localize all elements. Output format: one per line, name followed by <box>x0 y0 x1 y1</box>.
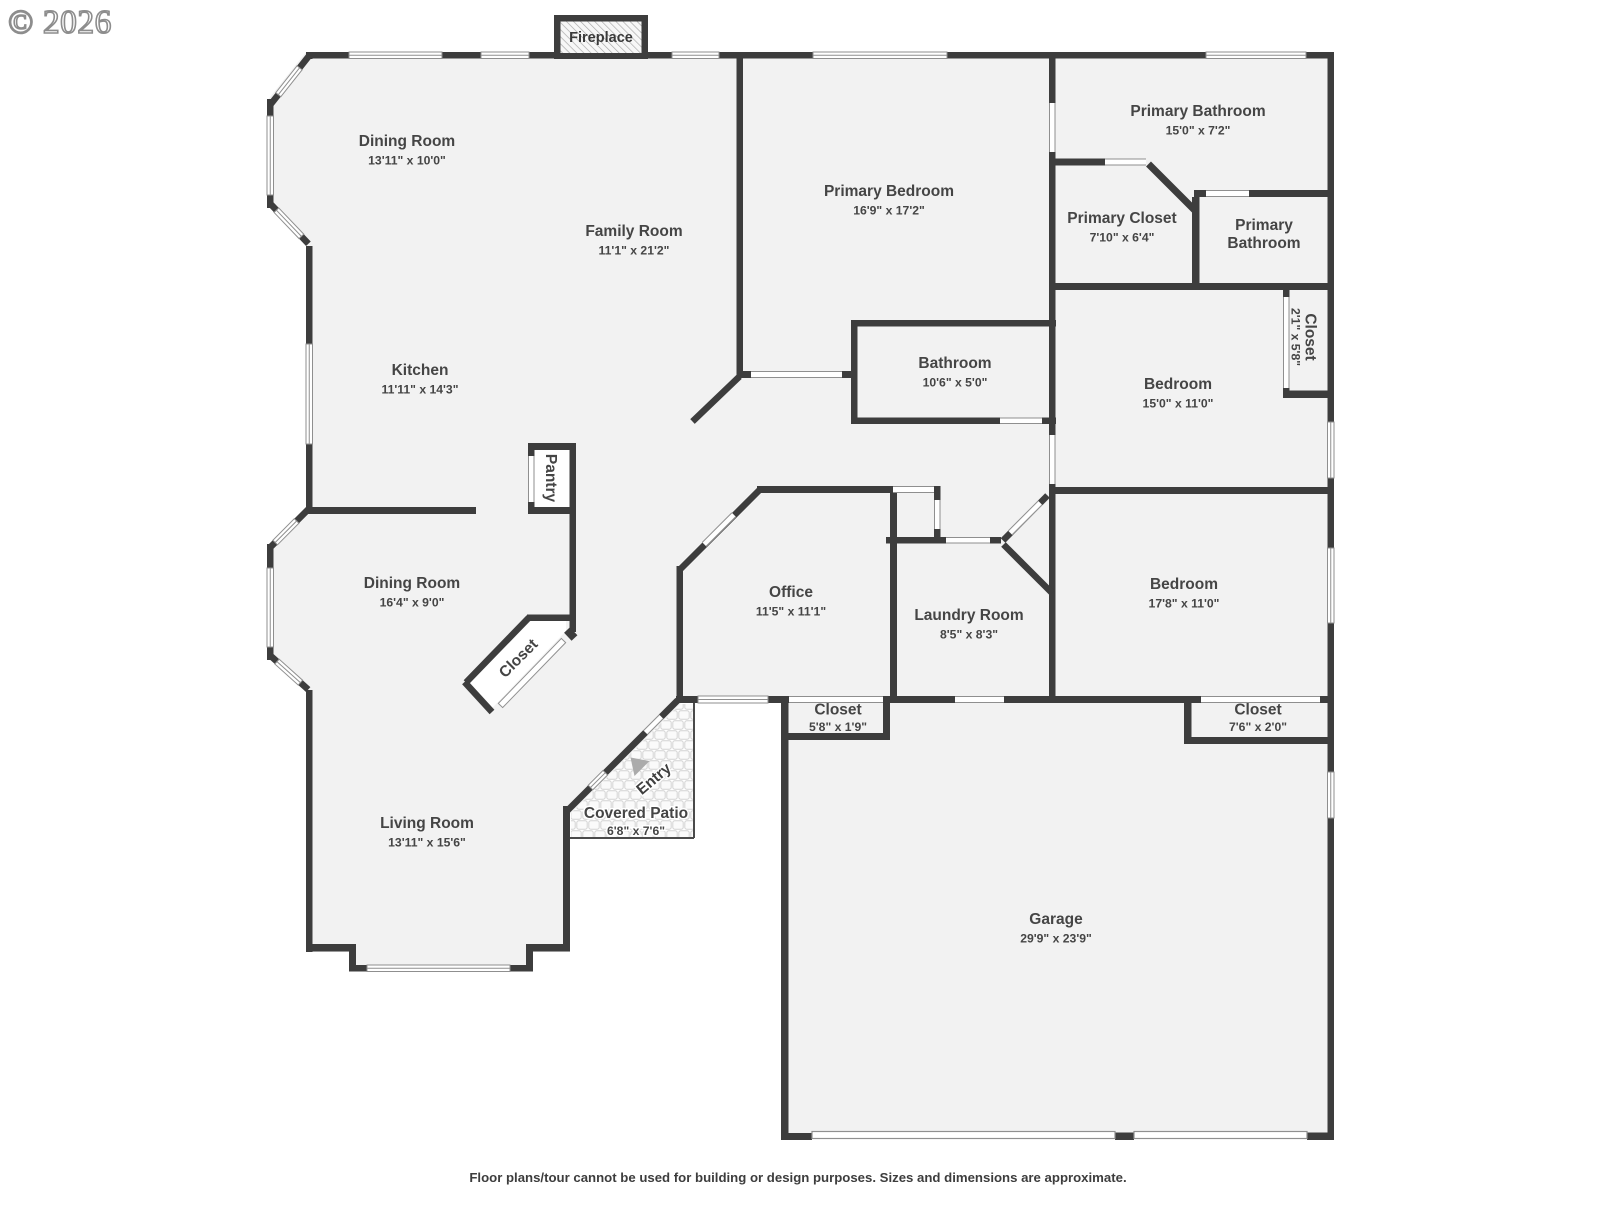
svg-text:Bathroom: Bathroom <box>918 355 991 372</box>
svg-text:Bedroom: Bedroom <box>1150 576 1218 593</box>
svg-text:5'8" x 1'9": 5'8" x 1'9" <box>809 720 867 734</box>
svg-text:Closet: Closet <box>814 702 861 719</box>
svg-text:13'11" x 15'6": 13'11" x 15'6" <box>388 836 466 850</box>
svg-text:Primary Closet: Primary Closet <box>1067 210 1176 227</box>
svg-text:16'4" x 9'0": 16'4" x 9'0" <box>380 596 445 610</box>
svg-text:29'9" x 23'9": 29'9" x 23'9" <box>1020 932 1092 946</box>
svg-text:Fireplace: Fireplace <box>569 30 633 46</box>
svg-text:Dining Room: Dining Room <box>359 133 455 150</box>
svg-text:13'11" x 10'0": 13'11" x 10'0" <box>368 154 446 168</box>
svg-text:11'11" x 14'3": 11'11" x 14'3" <box>381 383 458 397</box>
svg-text:Pantry: Pantry <box>542 454 559 503</box>
svg-text:10'6" x 5'0": 10'6" x 5'0" <box>923 376 988 390</box>
svg-text:11'1" x 21'2": 11'1" x 21'2" <box>599 244 670 258</box>
svg-text:6'8" x 7'6": 6'8" x 7'6" <box>607 824 665 838</box>
svg-text:15'0" x 7'2": 15'0" x 7'2" <box>1166 124 1231 138</box>
svg-text:Primary Bathroom: Primary Bathroom <box>1130 103 1265 120</box>
svg-text:Office: Office <box>769 584 813 601</box>
svg-text:2'1" x 5'8": 2'1" x 5'8" <box>1289 308 1303 366</box>
svg-text:15'0" x 11'0": 15'0" x 11'0" <box>1143 397 1214 411</box>
svg-text:8'5" x 8'3": 8'5" x 8'3" <box>940 628 998 642</box>
svg-text:Laundry Room: Laundry Room <box>914 607 1023 624</box>
svg-text:Dining Room: Dining Room <box>364 575 460 592</box>
svg-text:Closet: Closet <box>1234 702 1281 719</box>
svg-text:Kitchen: Kitchen <box>392 362 449 379</box>
svg-text:7'10" x 6'4": 7'10" x 6'4" <box>1090 231 1155 245</box>
svg-text:© 2026: © 2026 <box>8 4 112 41</box>
svg-text:Primary: Primary <box>1235 217 1293 234</box>
svg-text:Living Room: Living Room <box>380 815 474 832</box>
svg-text:16'9" x 17'2": 16'9" x 17'2" <box>853 204 925 218</box>
svg-text:Floor plans/tour cannot be use: Floor plans/tour cannot be used for buil… <box>469 1170 1126 1185</box>
svg-text:Garage: Garage <box>1029 911 1083 928</box>
svg-text:7'6" x 2'0": 7'6" x 2'0" <box>1229 720 1287 734</box>
svg-text:Closet: Closet <box>1302 313 1319 360</box>
svg-text:11'5" x 11'1": 11'5" x 11'1" <box>756 605 826 619</box>
svg-text:Primary Bedroom: Primary Bedroom <box>824 183 954 200</box>
svg-text:Bathroom: Bathroom <box>1227 235 1300 252</box>
svg-text:17'8" x 11'0": 17'8" x 11'0" <box>1149 597 1220 611</box>
svg-text:Bedroom: Bedroom <box>1144 376 1212 393</box>
svg-text:Covered Patio: Covered Patio <box>584 805 688 822</box>
svg-text:Family Room: Family Room <box>585 223 682 240</box>
